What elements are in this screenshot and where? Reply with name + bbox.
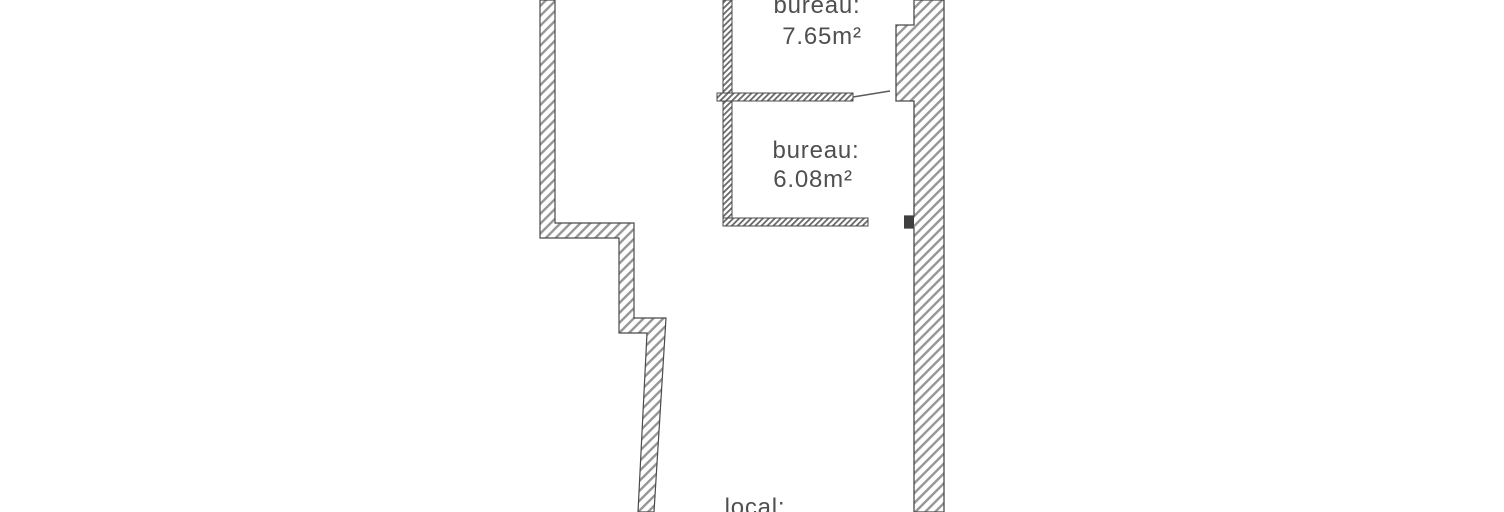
partition-wall-room1-bottom <box>717 93 853 101</box>
room1-area-label: 7.65m² <box>782 23 862 50</box>
floorplan-drawing: bureau: 7.65m² bureau: 6.08m² local: <box>0 0 1504 512</box>
paper-background <box>0 0 1504 512</box>
door-jamb-mark <box>904 216 914 229</box>
room3-name-label: local: <box>725 494 786 512</box>
room1-name-label: bureau: <box>774 0 861 19</box>
partition-wall-room2-bottom <box>723 218 868 226</box>
floorplan-viewport: bureau: 7.65m² bureau: 6.08m² local: <box>0 0 1504 512</box>
room2-name-label: bureau: <box>773 137 860 164</box>
room2-area-label: 6.08m² <box>773 166 853 193</box>
partition-wall-bureaus-left <box>723 0 732 226</box>
